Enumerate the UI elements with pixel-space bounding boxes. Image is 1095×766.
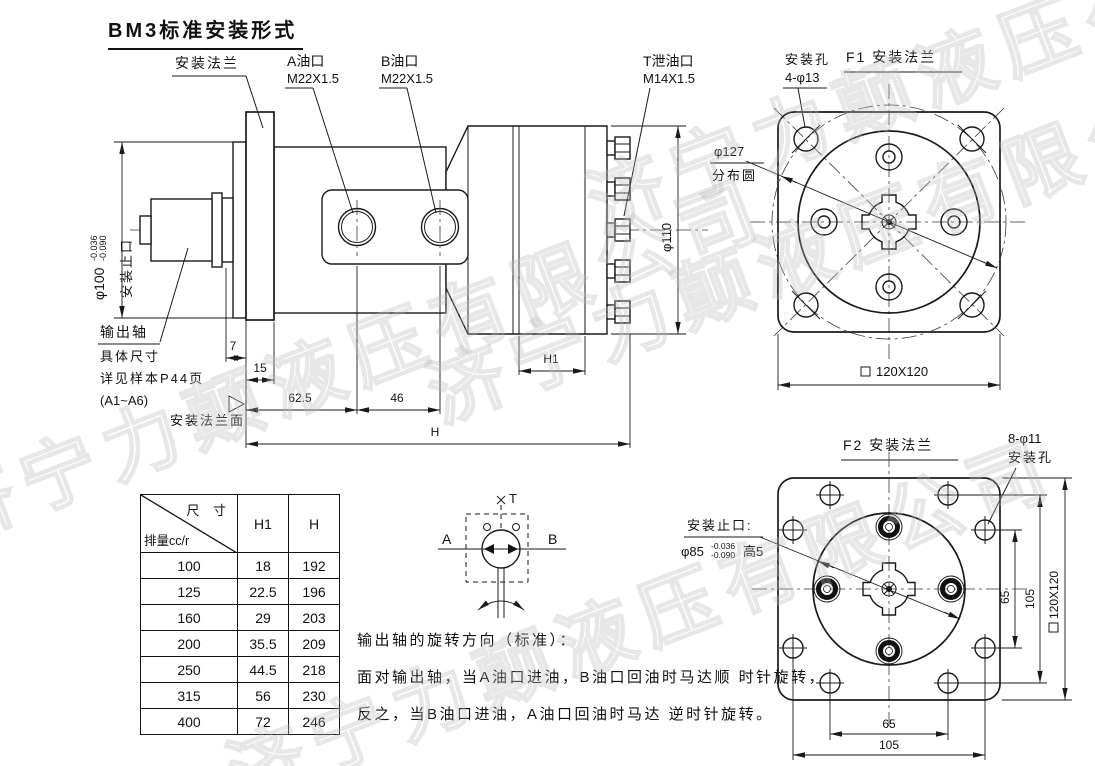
dimension-table: 尺 寸 排量cc/r H1 H 10018192 12522.5196 1602… bbox=[140, 494, 340, 735]
dim-7: 7 bbox=[230, 339, 237, 353]
table-cell: 22.5 bbox=[238, 579, 289, 605]
f2-dim-65-bottom: 65 bbox=[882, 717, 896, 731]
f2-dim-105-right: 105 bbox=[1023, 589, 1037, 609]
dim-h1: H1 bbox=[543, 352, 559, 366]
f1-holes-spec: 4-φ13 bbox=[785, 70, 819, 85]
square-symbol bbox=[1049, 623, 1058, 632]
svg-text:65: 65 bbox=[998, 590, 1012, 604]
svg-text:φ110: φ110 bbox=[659, 223, 674, 252]
port-b-label: B油口 bbox=[381, 53, 418, 69]
f2-square-size: 120X120 bbox=[1047, 571, 1061, 632]
symbol-port-b: B bbox=[548, 531, 557, 547]
header-h1: H1 bbox=[238, 495, 289, 553]
rotation-note-line1: 输出轴的旋转方向（标准）： bbox=[357, 622, 826, 659]
f2-spigot-dia: φ85 bbox=[681, 544, 704, 559]
svg-text:120X120: 120X120 bbox=[1047, 571, 1061, 619]
table-cell: 35.5 bbox=[238, 631, 289, 657]
table-row: 25044.5218 bbox=[141, 657, 340, 683]
svg-text:-0.090: -0.090 bbox=[98, 235, 108, 261]
square-symbol bbox=[861, 367, 870, 376]
f2-title: F2 安装法兰 bbox=[843, 437, 933, 453]
svg-text:105: 105 bbox=[1023, 589, 1037, 609]
flow-arrow-right bbox=[508, 544, 518, 554]
body-dia-label: φ110 bbox=[659, 223, 674, 252]
dim-15: 15 bbox=[253, 361, 267, 375]
f2-spigot-label: 安装止口: bbox=[687, 518, 753, 533]
table-row: 12522.5196 bbox=[141, 579, 340, 605]
table-row: 31556230 bbox=[141, 683, 340, 709]
end-bolts bbox=[607, 137, 630, 323]
drawing-page: BM3标准安装形式 bbox=[0, 0, 1095, 766]
table-cell: 44.5 bbox=[238, 657, 289, 683]
rotation-note: 输出轴的旋转方向（标准）： 面对输出轴，当A油口进油，B油口回油时马达顺 时针旋… bbox=[357, 622, 826, 733]
table-cell: 400 bbox=[141, 709, 238, 735]
hydraulic-symbol: T A B bbox=[438, 491, 566, 618]
rotation-arrow bbox=[478, 601, 524, 610]
symbol-port-t: T bbox=[509, 491, 517, 506]
f2-holes-label: 安装孔 bbox=[1008, 450, 1053, 465]
table-cell: 250 bbox=[141, 657, 238, 683]
dim-h: H bbox=[431, 425, 440, 439]
table-row: 10018192 bbox=[141, 553, 340, 579]
table-cell: 160 bbox=[141, 605, 238, 631]
table-cell: 230 bbox=[289, 683, 340, 709]
f1-view: F1 安装法兰 bbox=[710, 49, 1028, 390]
table-cell: 203 bbox=[289, 605, 340, 631]
port-t-label: T泄油口 bbox=[643, 53, 694, 69]
table-cell: 29 bbox=[238, 605, 289, 631]
f2-holes-spec: 8-φ11 bbox=[1008, 431, 1041, 446]
port-t-thread: M14X1.5 bbox=[643, 71, 695, 86]
table-cell: 315 bbox=[141, 683, 238, 709]
f2-dim-65-right: 65 bbox=[998, 590, 1012, 604]
header-h: H bbox=[289, 495, 340, 553]
f2-dim-105-bottom: 105 bbox=[879, 738, 899, 752]
output-shaft-label: 输出轴 bbox=[100, 324, 148, 340]
rotation-note-line3: 反之，当B油口进油，A油口回油时马达 逆时针旋转。 bbox=[357, 696, 826, 733]
svg-text:安装止口: 安装止口 bbox=[119, 238, 134, 298]
f1-title: F1 安装法兰 bbox=[846, 49, 936, 65]
shaft-note-2: 详见样本P44页 bbox=[100, 371, 204, 386]
f1-bolt-circle-dia: φ127 bbox=[714, 144, 744, 159]
table-row: 40072246 bbox=[141, 709, 340, 735]
table-cell: 72 bbox=[238, 709, 289, 735]
port-b-thread: M22X1.5 bbox=[381, 71, 433, 86]
shaft-note-3: (A1~A6) bbox=[100, 393, 148, 408]
shaft-note-1: 具体尺寸 bbox=[100, 349, 160, 364]
table-diagonal-header: 尺 寸 排量cc/r bbox=[141, 495, 238, 553]
dim-46: 46 bbox=[390, 391, 404, 405]
spigot-label: 安装止口 bbox=[119, 238, 134, 298]
f1-bolt-circle-label: 分布圆 bbox=[712, 168, 757, 183]
symbol-port-a: A bbox=[442, 531, 452, 547]
table-cell: 209 bbox=[289, 631, 340, 657]
table-row: 20035.5209 bbox=[141, 631, 340, 657]
table-row: 16029203 bbox=[141, 605, 340, 631]
table-cell: 18 bbox=[238, 553, 289, 579]
f2-spigot-tol-bottom: -0.090 bbox=[711, 550, 735, 560]
port-a-label: A油口 bbox=[287, 53, 324, 69]
header-displacement: 排量cc/r bbox=[144, 530, 189, 549]
flange-face-label: 安装法兰面 bbox=[170, 413, 245, 428]
rotation-note-line2: 面对输出轴，当A油口进油，B油口回油时马达顺 时针旋转， bbox=[357, 659, 826, 696]
side-view: 安装法兰 A油口 M22X1.5 B油口 M22X1.5 T泄油口 M14X1.… bbox=[89, 53, 708, 448]
table-cell: 56 bbox=[238, 683, 289, 709]
flange-face-mark bbox=[229, 396, 244, 412]
svg-text:φ100: φ100 bbox=[91, 267, 107, 300]
flow-arrow-left bbox=[484, 544, 494, 554]
header-size: 尺 寸 bbox=[186, 500, 231, 519]
shaft-dia-label: φ100 -0.036 -0.090 bbox=[89, 235, 108, 300]
table-cell: 218 bbox=[289, 657, 340, 683]
f1-square-size: 120X120 bbox=[876, 364, 928, 379]
flange-label: 安装法兰 bbox=[175, 55, 239, 71]
table-cell: 200 bbox=[141, 631, 238, 657]
port-a-thread: M22X1.5 bbox=[287, 71, 339, 86]
f1-holes-label: 安装孔 bbox=[785, 52, 830, 67]
table-cell: 100 bbox=[141, 553, 238, 579]
f2-spigot-height: 高5 bbox=[743, 544, 763, 559]
table-cell: 192 bbox=[289, 553, 340, 579]
table-cell: 125 bbox=[141, 579, 238, 605]
table-cell: 196 bbox=[289, 579, 340, 605]
dim-62-5: 62.5 bbox=[288, 391, 312, 405]
page-title: BM3标准安装形式 bbox=[108, 14, 303, 50]
table-cell: 246 bbox=[289, 709, 340, 735]
